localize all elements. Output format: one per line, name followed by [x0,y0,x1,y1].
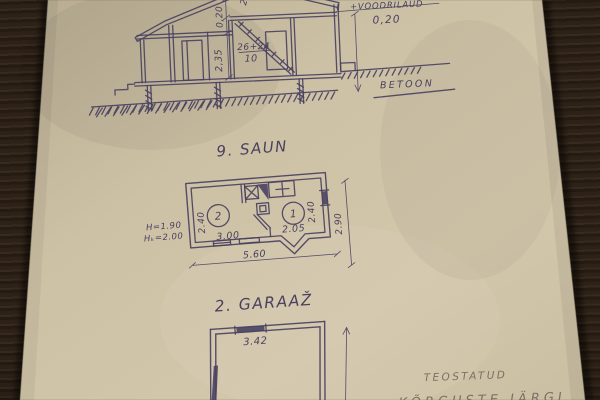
room1-height-dim: 2.40 [306,200,318,223]
paper-stain [380,20,560,280]
blueprint-photo: 0,20 2,35 26+24 10 2,4 ROOVITIS +VOODRIL… [0,0,600,400]
garage-opening-dim: 3.42 [243,336,268,349]
timber-fraction-numerator: 26+24 [237,42,270,53]
overall-depth-dim: 2.90 [333,212,345,235]
wall-height-dim-label: 2,35 [213,49,225,73]
roof-layer-dim-label: 0,20 [215,6,226,28]
room-1-number: 1 [289,208,297,221]
room-2-number: 2 [214,210,222,223]
drawing-sheet-svg: 0,20 2,35 26+24 10 2,4 ROOVITIS +VOODRIL… [0,0,600,400]
overall-width-dim: 5.60 [243,249,267,262]
room1-width-dim: 2.05 [282,223,306,236]
cladding-dim-label: 0,20 [372,13,401,26]
room2-width-dim: 3.00 [216,230,240,243]
paper-sheet [20,0,585,400]
room2-height-dim: 2.40 [196,211,208,234]
timber-fraction-denominator: 10 [244,53,258,65]
